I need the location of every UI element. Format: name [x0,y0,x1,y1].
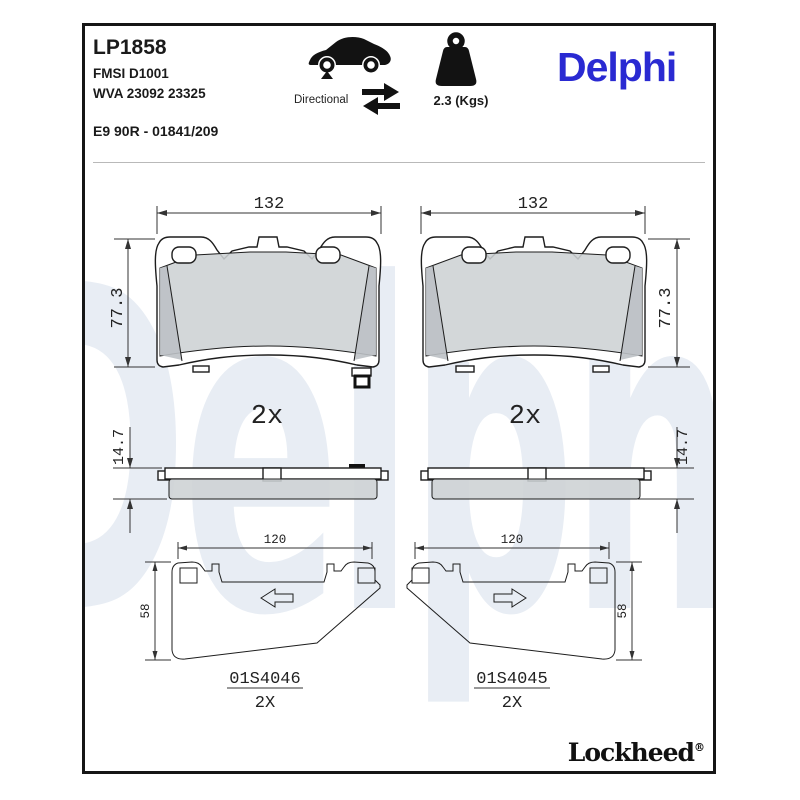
lockheed-wordmark: Lockheed [568,738,694,767]
friction-edge [169,479,377,499]
registered-mark: ® [694,741,704,754]
svg-text:14.7: 14.7 [111,429,128,465]
pad-front-right-drawing: 132 77.3 [405,190,705,400]
direction-arrow-left [261,589,293,607]
weight-icon [431,32,481,90]
pad-geometry [155,237,380,387]
svg-text:58: 58 [139,603,153,618]
dim-width-left: 132 [157,195,381,234]
wear-indicator-sensor [355,376,369,387]
svg-text:14.7: 14.7 [675,429,692,465]
directional-arrows-icon [362,82,400,116]
svg-text:132: 132 [254,195,285,214]
dim-height-left: 77.3 [109,239,155,367]
weight-value: 2.3 (Kgs) [415,93,507,108]
header-divider [93,162,705,163]
shim-hole-left [180,568,197,583]
pad-front-left-drawing: 132 77.3 [100,190,400,400]
shim-part-number-right: 01S4045 [476,670,547,689]
directional-label: Directional [294,94,348,106]
shim-geometry [172,562,380,659]
lockheed-logo: Lockheed® [568,738,704,767]
shim-qty-right: 2X [502,694,522,713]
qty-label-right: 2x [509,402,541,432]
dim-height-right: 77.3 [648,239,690,367]
shim-qty-left: 2X [255,694,275,713]
pad-geometry-mirrored [421,237,646,372]
svg-text:132: 132 [518,195,549,214]
dim-shim-width-left: 120 [178,533,372,559]
shim-left-drawing: 120 58 01S4046 2X [135,520,395,715]
fmsi-reference: FMSI D1001 [93,66,169,81]
front-axle-arrow [321,71,333,79]
pad-side-left-drawing: 2x 14.7 [105,395,400,540]
direction-arrow-right [494,589,526,607]
side-geometry-mirrored [421,468,651,499]
shim-right-drawing: 120 58 01S4045 2X [400,520,660,715]
qty-label-left: 2x [251,402,283,432]
dim-width-right: 132 [421,195,645,234]
svg-text:77.3: 77.3 [657,288,676,329]
abutment-hole-left [172,247,196,263]
svg-text:120: 120 [264,533,287,547]
svg-text:120: 120 [501,533,524,547]
shim-part-number-left: 01S4046 [229,670,300,689]
dim-shim-height-left: 58 [139,562,171,660]
shim-geometry-mirrored [407,562,615,659]
ece-approval: E9 90R - 01841/209 [93,123,218,139]
dim-shim-height-right: 58 [616,562,642,660]
part-number: LP1858 [93,36,167,60]
bottom-tab [193,366,209,372]
delphi-logo: Delphi [557,44,676,91]
abutment-hole-right [316,247,340,263]
car-icon [303,32,395,80]
svg-text:58: 58 [616,603,630,618]
dim-shim-width-right: 120 [415,533,609,559]
shim-hole-right [358,568,375,583]
svg-text:77.3: 77.3 [109,288,128,329]
pad-side-right-drawing: 2x 14.7 [405,395,700,540]
side-geometry [158,464,388,499]
wva-reference: WVA 23092 23325 [93,86,206,101]
datasheet-page: Delphi LP1858 FMSI D1001 WVA 23092 23325… [82,23,716,774]
